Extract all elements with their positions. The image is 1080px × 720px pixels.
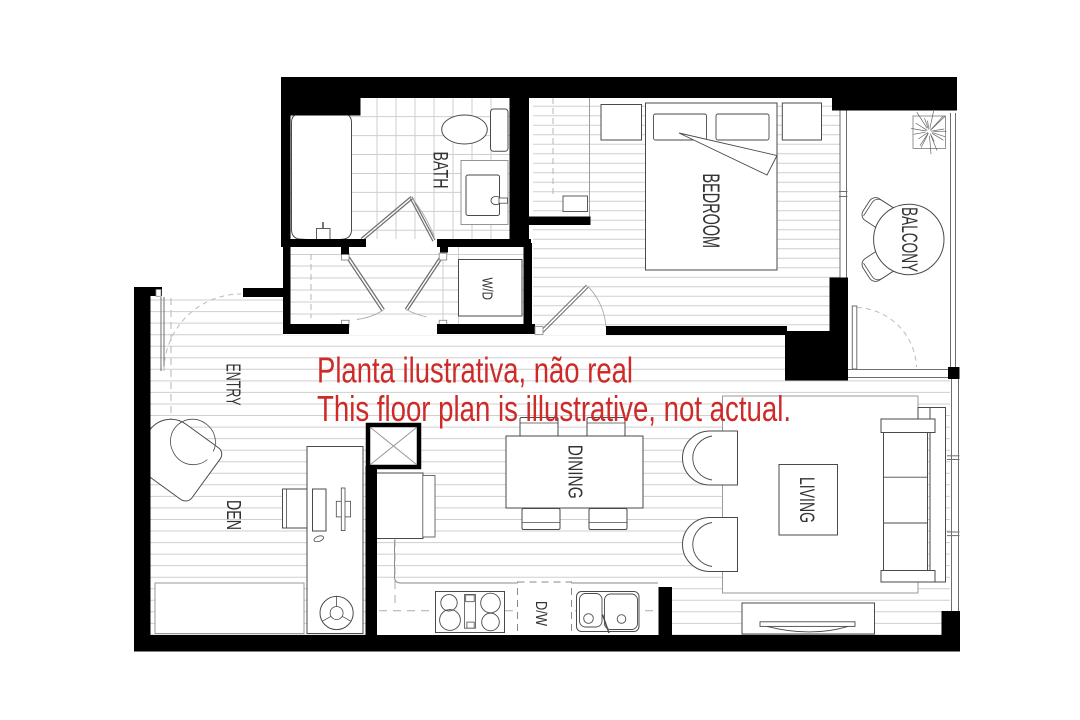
svg-text:BEDROOM: BEDROOM	[697, 174, 724, 249]
svg-text:ENTRY: ENTRY	[222, 364, 244, 406]
svg-text:W/D: W/D	[479, 277, 496, 300]
svg-text:Planta ilustrativa, não real: Planta ilustrativa, não real	[317, 350, 633, 391]
svg-text:This floor plan is illustrativ: This floor plan is illustrative, not act…	[317, 388, 791, 429]
svg-text:LIVING: LIVING	[795, 477, 818, 523]
svg-text:D/W: D/W	[532, 601, 549, 627]
svg-text:BALCONY: BALCONY	[897, 207, 922, 272]
svg-text:DEN: DEN	[222, 500, 244, 530]
svg-text:BATH: BATH	[429, 152, 452, 189]
svg-text:DINING: DINING	[564, 445, 586, 499]
